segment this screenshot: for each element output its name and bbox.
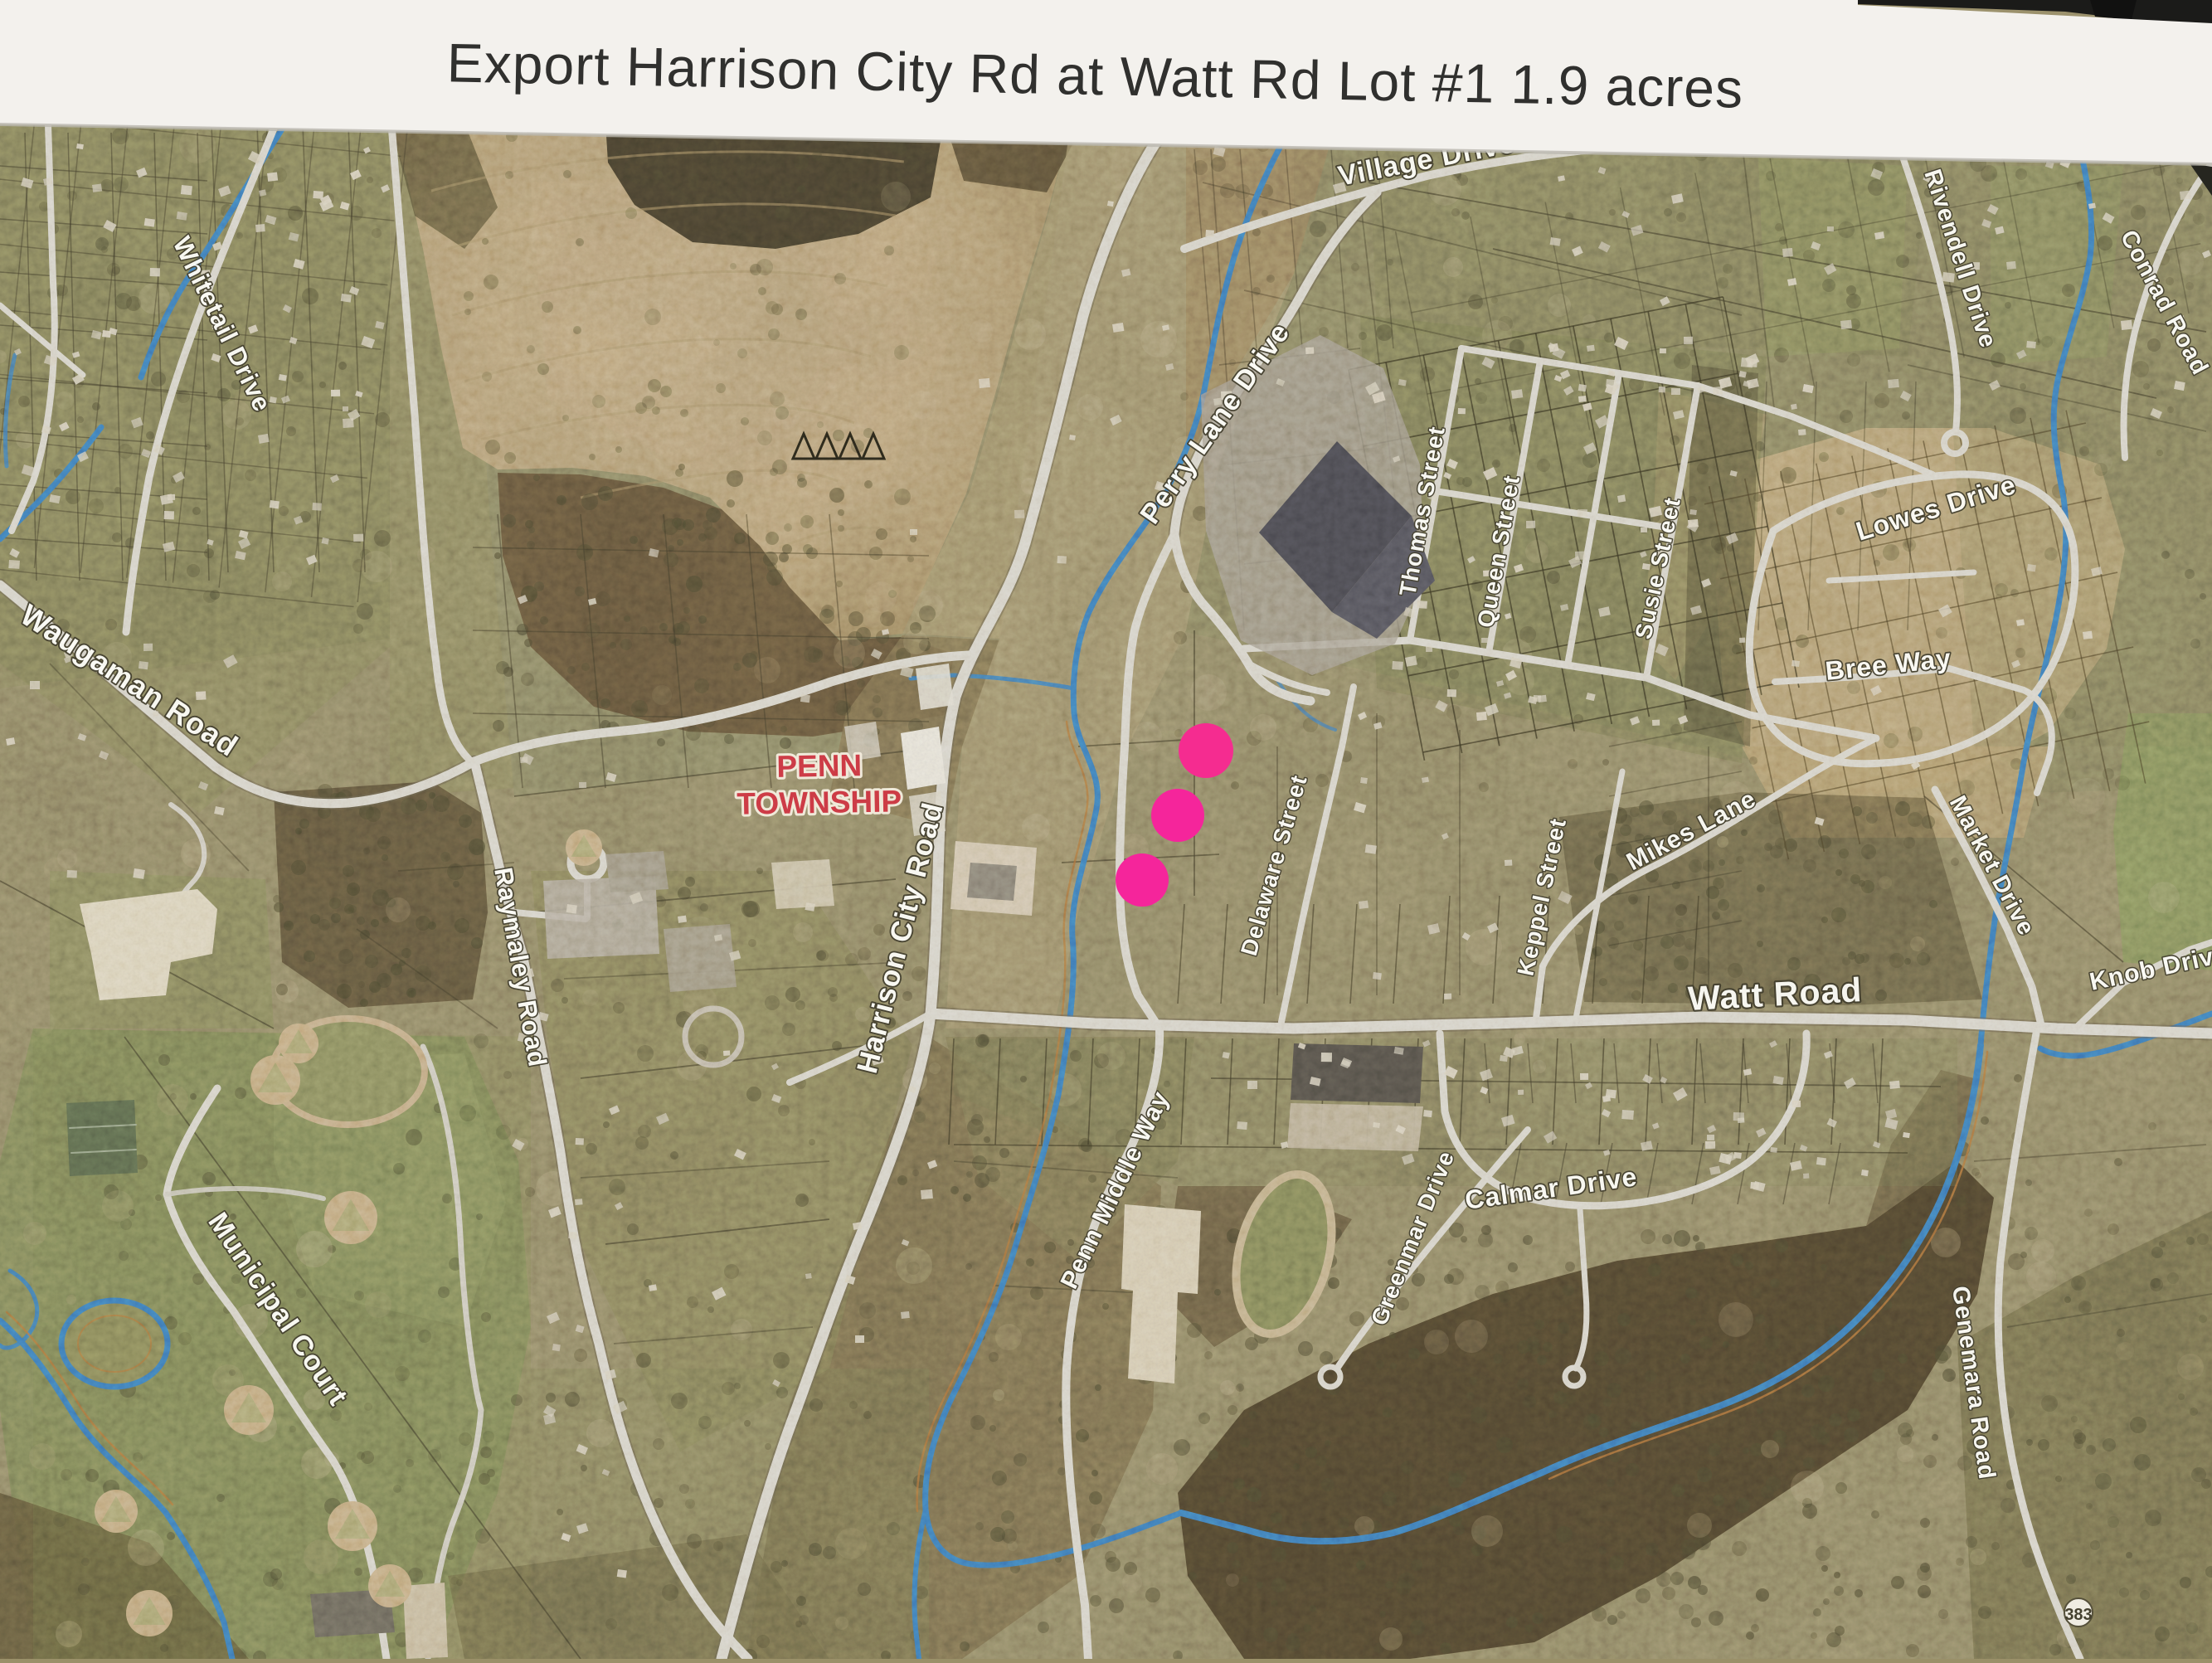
svg-text:383: 383 — [2064, 1606, 2092, 1624]
svg-text:PENN: PENN — [776, 748, 863, 784]
svg-text:TOWNSHIP: TOWNSHIP — [737, 784, 902, 820]
